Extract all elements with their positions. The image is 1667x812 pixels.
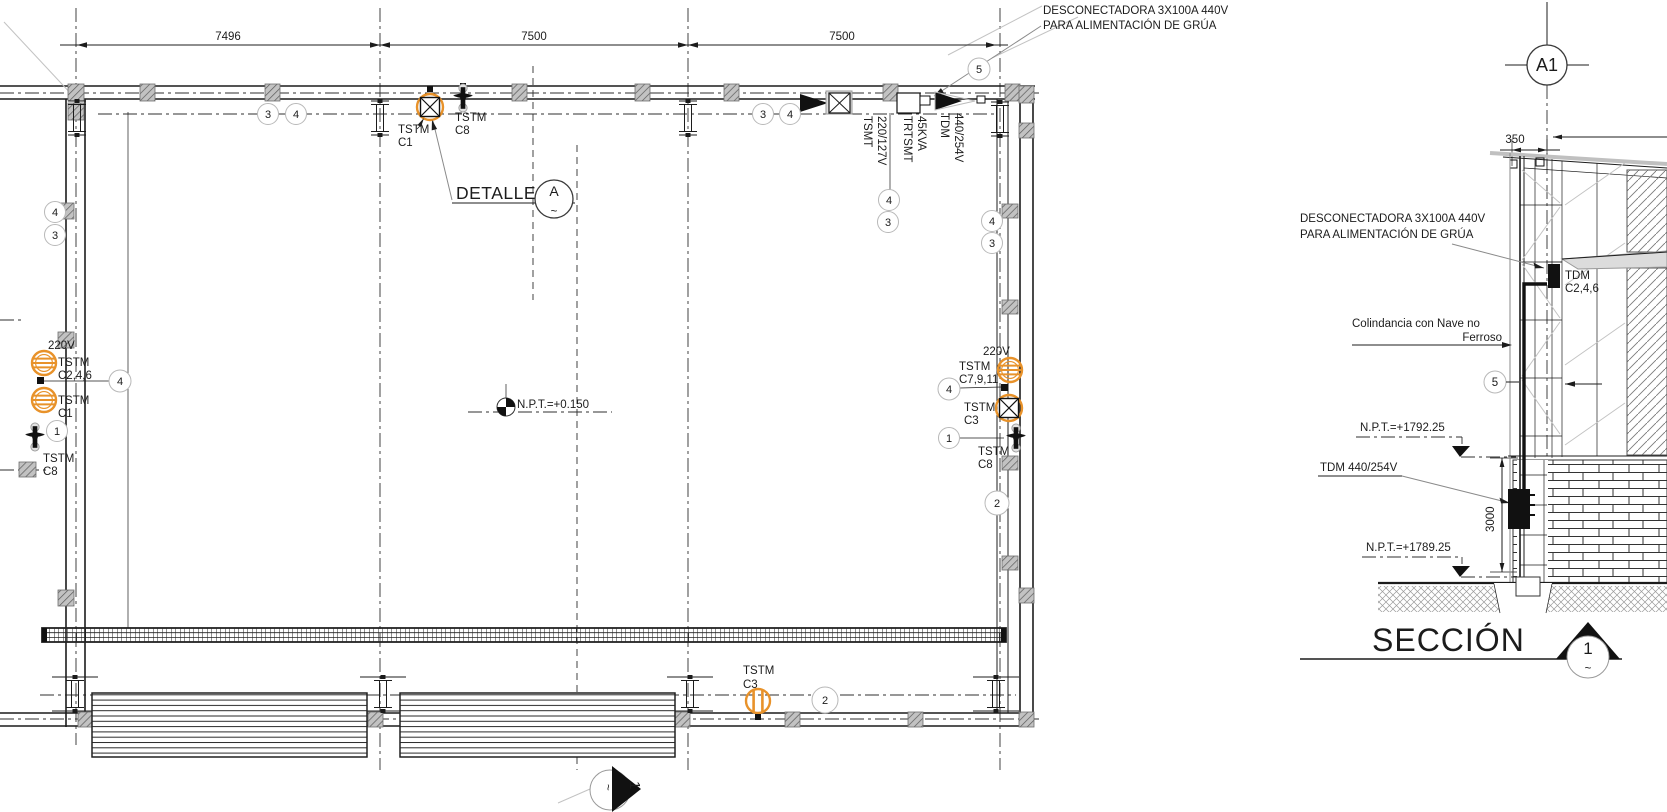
keynote-2: 2	[822, 695, 828, 707]
level-flag-icon	[1452, 446, 1470, 457]
section-title-label: SECCIÓN	[1372, 622, 1525, 658]
dim-bay2-label: 7500	[521, 31, 547, 43]
keynote-1: 1	[54, 426, 60, 438]
right-tstm1-circuits: C7,9,11	[959, 374, 998, 386]
right-luminaires: 220V TSTM C7,9,11 TSTM C3 TSTM C8	[959, 346, 1026, 471]
left-tstm1-circuits: C2,4,6	[58, 370, 92, 382]
keynote-circles: 3 4 3 4 4 3 4 3 4 3 4 1 4 1 2 2 5	[45, 58, 1010, 713]
keynote-4: 4	[989, 216, 995, 228]
keynote-5-section: 5	[1484, 371, 1602, 393]
dimensions-top: 7496 7500 7500	[60, 31, 1008, 48]
detail-bubble-letter: A	[549, 183, 559, 199]
keynote-3: 3	[265, 109, 271, 121]
section-title-sub: ~	[1585, 663, 1592, 675]
boundary-line2: Ferroso	[1462, 332, 1502, 344]
tdm-rating: 440/254V	[952, 113, 964, 163]
keynote-4: 4	[946, 384, 952, 396]
left-tstm3-label: TSTM	[43, 453, 74, 465]
tsmt-rating: 220/127V	[875, 116, 887, 166]
trtsmt-box-icon	[897, 93, 920, 113]
keynote-3: 3	[52, 230, 58, 242]
section-view: A1 350 3000	[1300, 2, 1667, 678]
keynote-3: 3	[760, 109, 766, 121]
crane-note-line2: PARA ALIMENTACIÓN DE GRÚA	[1043, 19, 1217, 32]
trtsmt-name: TRTSMT	[901, 116, 913, 162]
tdm-panel-box	[1508, 489, 1530, 529]
drawing-canvas: 7496 7500 7500 DESCONECTADORA 3X100A 440…	[0, 0, 1667, 812]
level-flag-icon	[1452, 566, 1470, 577]
section-title: SECCIÓN 1 ~	[1300, 622, 1622, 678]
level-upper-label: N.P.T.=+1792.25	[1360, 422, 1445, 434]
cut-marker-number: 1	[626, 781, 643, 789]
dim-bay1-label: 7496	[215, 31, 241, 43]
boundary-line1: Colindancia con Nave no	[1352, 318, 1480, 330]
luminaire-icon	[32, 351, 56, 375]
top-tstm1-label: TSTM	[398, 124, 429, 136]
left-tstm3-circuits: C8	[43, 466, 58, 478]
tdm-name: TDM	[938, 113, 950, 138]
left-voltage-label: 220V	[48, 340, 75, 352]
keynote-4: 4	[787, 109, 793, 121]
detail-callout: DETALLE A ~	[432, 120, 575, 218]
tdm-panel-label: TDM 440/254V	[1320, 462, 1398, 474]
tsmt-name: TSMT	[861, 116, 873, 147]
top-tstm1-circuits: C1	[398, 137, 413, 149]
crane-disconnect-note-plan: DESCONECTADORA 3X100A 440V PARA ALIMENTA…	[934, 5, 1228, 96]
left-tstm2-label: TSTM	[58, 395, 89, 407]
luminaire-boxx-icon	[417, 94, 443, 120]
trtsmt-rating: 45KVA	[915, 116, 927, 151]
right-tstm3-circuits: C8	[978, 459, 993, 471]
boundary-note: Colindancia con Nave no Ferroso	[1352, 318, 1512, 348]
luminaire-icon	[746, 689, 770, 713]
level-upper: N.P.T.=+1792.25	[1356, 422, 1516, 457]
detail-bubble-sub: ~	[551, 206, 558, 218]
bottom-tstm-label: TSTM	[743, 665, 774, 677]
bottom-doors	[92, 693, 675, 757]
npt-level-label: N.P.T.=+0.150	[517, 399, 589, 411]
dim-bay3-label: 7500	[829, 31, 855, 43]
cad-drawing-screenshot: 7496 7500 7500 DESCONECTADORA 3X100A 440…	[0, 0, 1667, 812]
right-tstm2-label: TSTM	[964, 402, 995, 414]
keynote-3: 3	[885, 217, 891, 229]
crane-note-line2: PARA ALIMENTACIÓN DE GRÚA	[1300, 228, 1474, 241]
right-tstm3-label: TSTM	[978, 446, 1009, 458]
left-tstm2-circuits: C1	[58, 408, 73, 420]
section-cut-marker: 1 ~	[558, 766, 643, 812]
ceiling-fan-icon	[25, 423, 45, 451]
luminaire-boxx-icon	[996, 395, 1022, 421]
section-title-number: 1	[1583, 639, 1592, 658]
tdm-circuits: C2,4,6	[1565, 283, 1599, 295]
luminaire-icon	[32, 388, 56, 412]
top-tstm2-circuits: C8	[455, 125, 470, 137]
equipment-transformers: TSMT 220/127V TRTSMT 45KVA TDM 440/254V	[800, 91, 985, 190]
floor-plan: 7496 7500 7500 DESCONECTADORA 3X100A 440…	[0, 5, 1228, 812]
right-voltage-label: 220V	[983, 346, 1010, 358]
keynote-5: 5	[976, 64, 982, 76]
luminaire-icon	[998, 358, 1022, 382]
keynote-5: 5	[1492, 377, 1498, 389]
feeder-triangle-icon	[800, 94, 828, 112]
crane-note-line1: DESCONECTADORA 3X100A 440V	[1043, 5, 1228, 17]
keynote-2: 2	[994, 498, 1000, 510]
dim-350-label: 350	[1505, 134, 1524, 146]
top-tstm2-label: TSTM	[455, 112, 486, 124]
grating-trench	[42, 628, 1006, 642]
keynote-4: 4	[886, 195, 892, 207]
keynote-4: 4	[117, 376, 123, 388]
crane-disconnect-note-section: DESCONECTADORA 3X100A 440V PARA ALIMENTA…	[1300, 213, 1544, 268]
level-benchmark-icon	[497, 398, 515, 416]
keynote-4: 4	[52, 207, 58, 219]
louvered-door	[400, 693, 675, 757]
floor-level-marker: N.P.T.=+0.150	[468, 384, 612, 416]
right-tstm2-circuits: C3	[964, 415, 979, 427]
dim-3000-label: 3000	[1485, 506, 1497, 532]
cut-marker-sub: ~	[601, 784, 613, 791]
left-luminaires: 220V TSTM C2,4,6 TSTM C1 TSTM C8	[25, 340, 109, 478]
keynote-4: 4	[293, 109, 299, 121]
disconnect-box-icon	[920, 96, 930, 105]
tdm-label: TDM	[1565, 270, 1590, 282]
detail-label: DETALLE	[456, 183, 536, 203]
level-lower-label: N.P.T.=+1789.25	[1366, 542, 1451, 554]
keynote-1: 1	[946, 433, 952, 445]
grid-bubble-label: A1	[1536, 55, 1558, 75]
ceiling-fan-icon	[453, 84, 473, 112]
right-tstm1-label: TSTM	[959, 361, 990, 373]
crane-note-line1: DESCONECTADORA 3X100A 440V	[1300, 213, 1485, 225]
keynote-3: 3	[989, 238, 995, 250]
louvered-door	[92, 693, 367, 757]
bottom-luminaire: TSTM C3	[743, 665, 774, 720]
left-tstm1-label: TSTM	[58, 357, 89, 369]
